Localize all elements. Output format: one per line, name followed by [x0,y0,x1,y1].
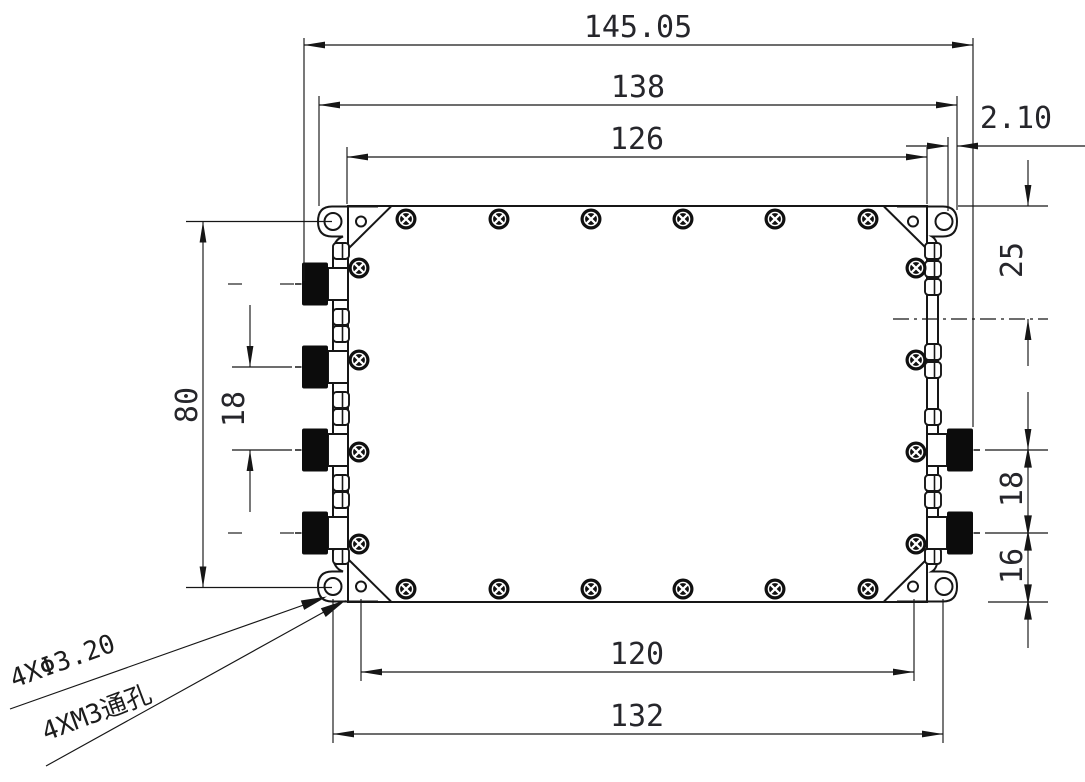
flange-clip [333,492,349,508]
dim-flange-width: 138 [611,70,665,105]
dim-tab-offset: 2.10 [980,101,1052,136]
screw [906,350,927,371]
flange-clip [925,279,941,295]
screw [349,258,370,279]
screw [581,579,602,600]
flange-clip [333,392,349,408]
flange-clip [333,309,349,325]
screw [396,209,417,230]
rf-connector [295,346,348,389]
screw [673,579,694,600]
dim-bottom-inner-span: 120 [610,637,664,672]
flange-clip [925,362,941,378]
screw [673,209,694,230]
screw [349,442,370,463]
flange-clip [925,243,941,259]
screw [858,579,879,600]
screw [581,209,602,230]
screw [906,534,927,555]
flange-clip [925,492,941,508]
screw [396,579,417,600]
screw [858,209,879,230]
dim-total-width: 145.05 [584,10,692,45]
screw [765,209,786,230]
background [0,0,1085,782]
screw [489,579,510,600]
dim-right-port-pitch: 18 [995,471,1030,507]
flange-clip [925,344,941,360]
dim-bottom-outer-span: 132 [610,699,664,734]
dim-left-port-pitch: 18 [217,391,252,427]
screw [349,350,370,371]
rf-connector [295,512,348,555]
dim-mount-hole-row-span: 80 [170,387,205,423]
mechanical-dimension-drawing: 145.05 138 126 2.10 80 18 25 18 16 120 1… [0,0,1085,782]
rf-connector [295,429,348,472]
flange-clip [333,475,349,491]
drawing-canvas: 145.05 138 126 2.10 80 18 25 18 16 120 1… [0,0,1085,782]
rf-connector [295,263,348,306]
rf-connector [927,512,980,555]
flange-clip [333,548,349,564]
dim-right-top: 25 [995,242,1030,278]
flange-clip [333,243,349,259]
rf-connector [927,429,980,472]
dim-right-port-bottom: 16 [995,548,1030,584]
flange-clip [925,409,941,425]
flange-clip [925,261,941,277]
dim-body-width: 126 [610,122,664,157]
flange-clip [925,548,941,564]
screw [489,209,510,230]
flange-clip [333,409,349,425]
screw [906,442,927,463]
screw [349,534,370,555]
screw [906,258,927,279]
flange-clip [925,475,941,491]
flange-clip [333,326,349,342]
screw [765,579,786,600]
